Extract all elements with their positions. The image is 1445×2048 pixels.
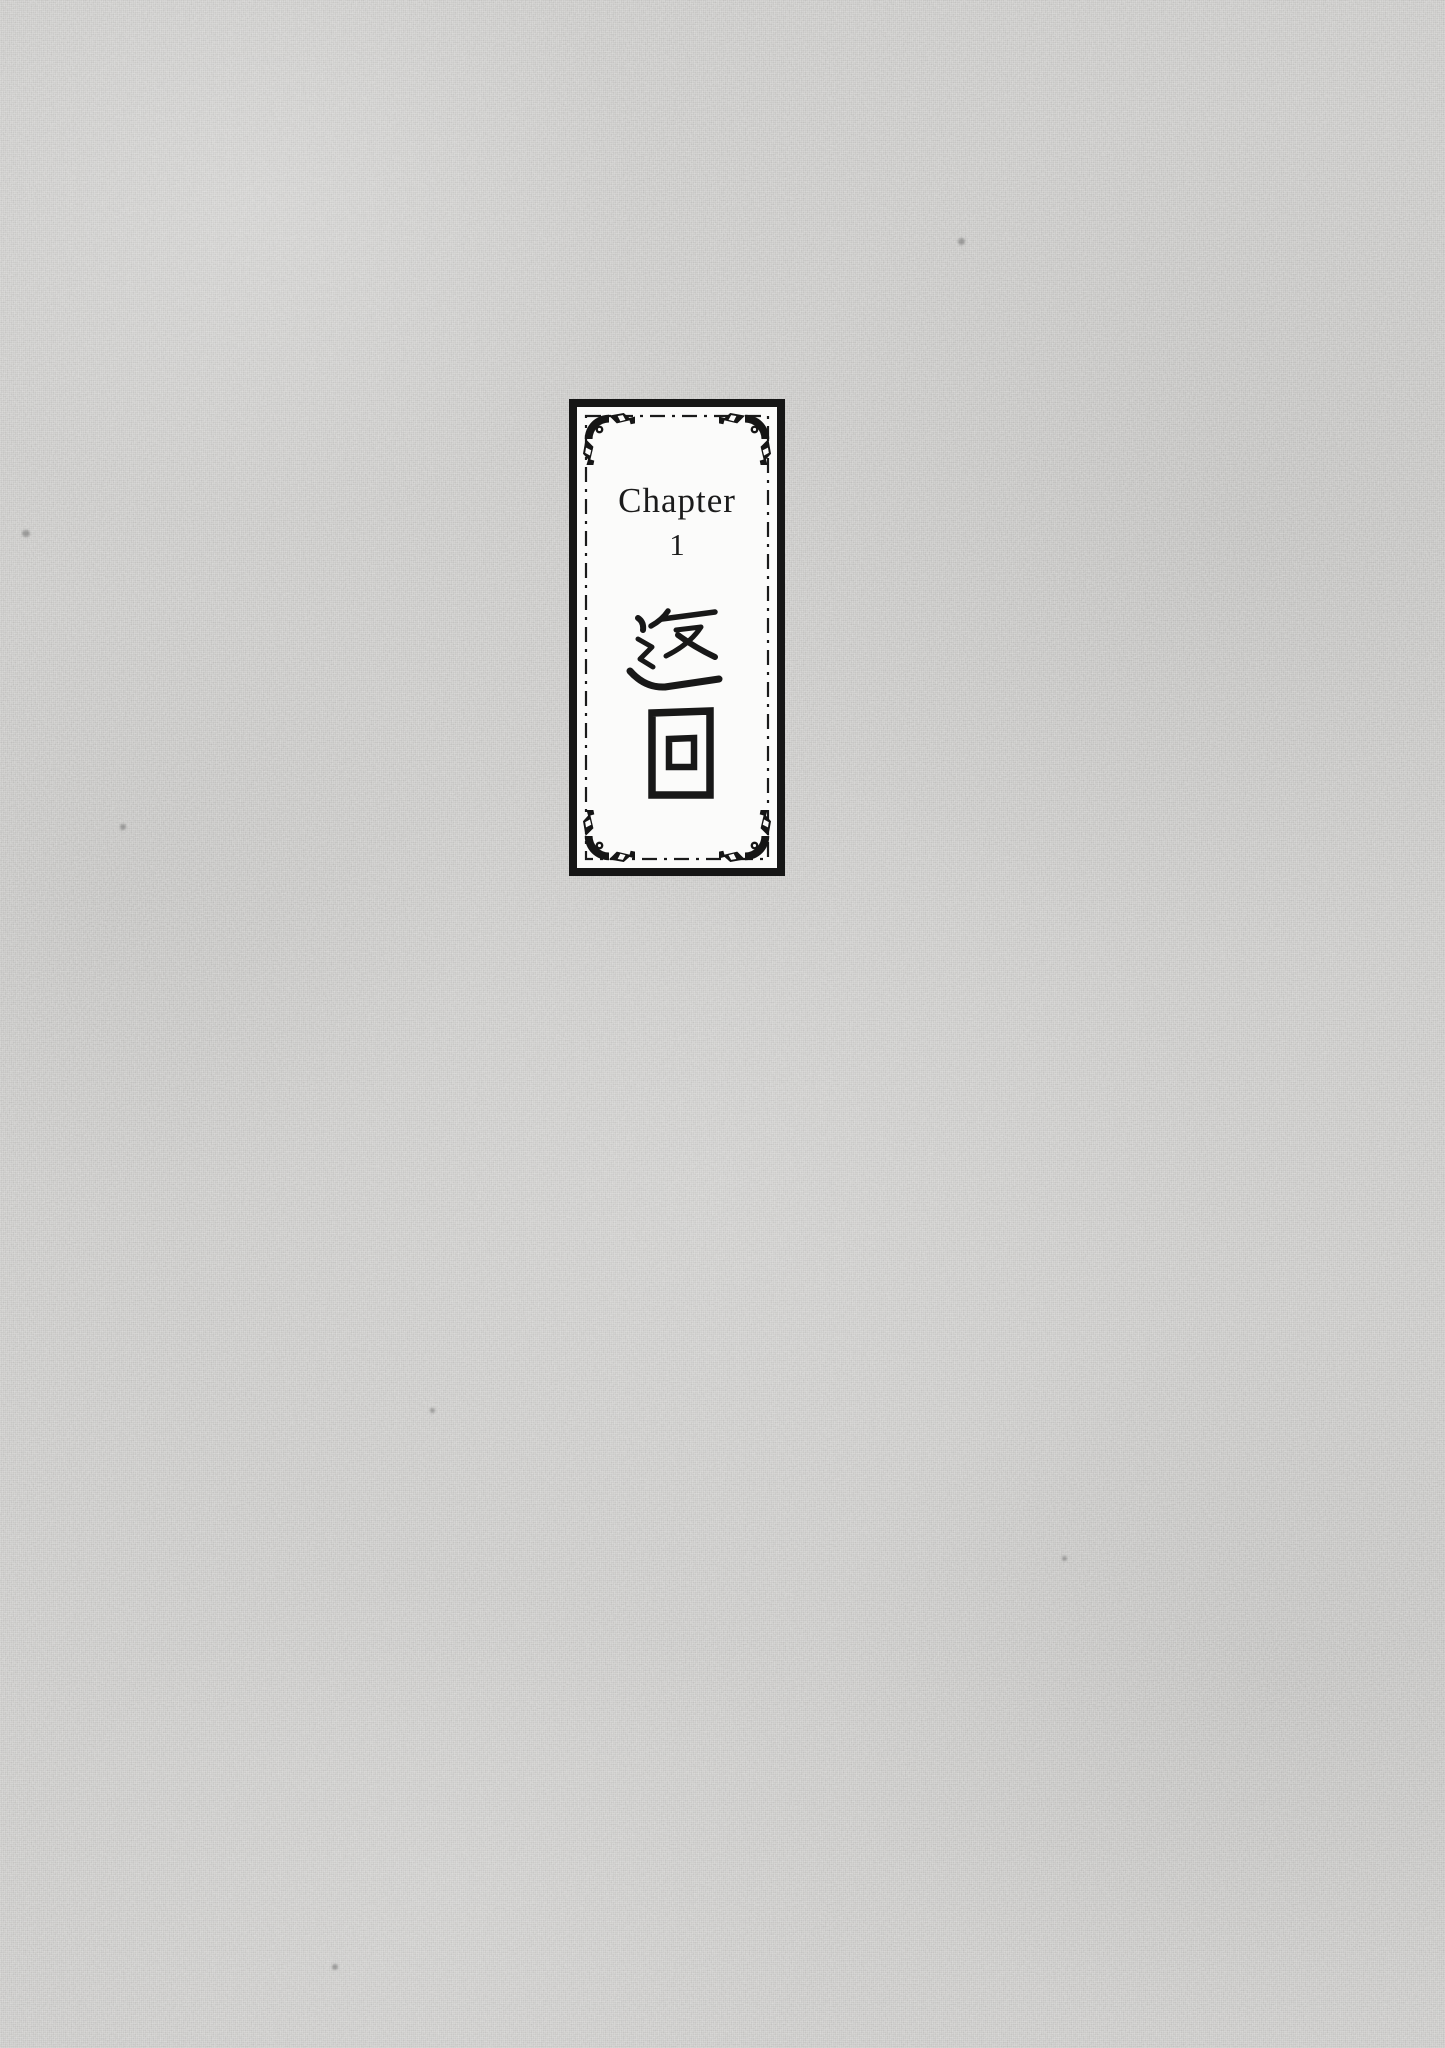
corner-ornament-icon — [583, 810, 635, 862]
chapter-label: Chapter — [577, 483, 777, 518]
speck — [958, 238, 965, 245]
chapter-title-cjk: 返回 — [622, 605, 732, 805]
chapter-number: 1 — [577, 529, 777, 560]
speck — [22, 530, 30, 537]
speck — [332, 1964, 338, 1970]
kanji-fan-hui-icon — [622, 605, 732, 805]
chapter-plate: Chapter 1 返回 — [569, 399, 785, 876]
corner-ornament-icon — [719, 810, 771, 862]
speck — [120, 824, 126, 830]
fabric-texture — [0, 0, 1445, 2048]
manga-chapter-page: Chapter 1 返回 — [0, 0, 1445, 2048]
speck — [430, 1408, 435, 1413]
corner-ornament-icon — [583, 413, 635, 465]
corner-ornament-icon — [719, 413, 771, 465]
speck — [1062, 1556, 1067, 1561]
